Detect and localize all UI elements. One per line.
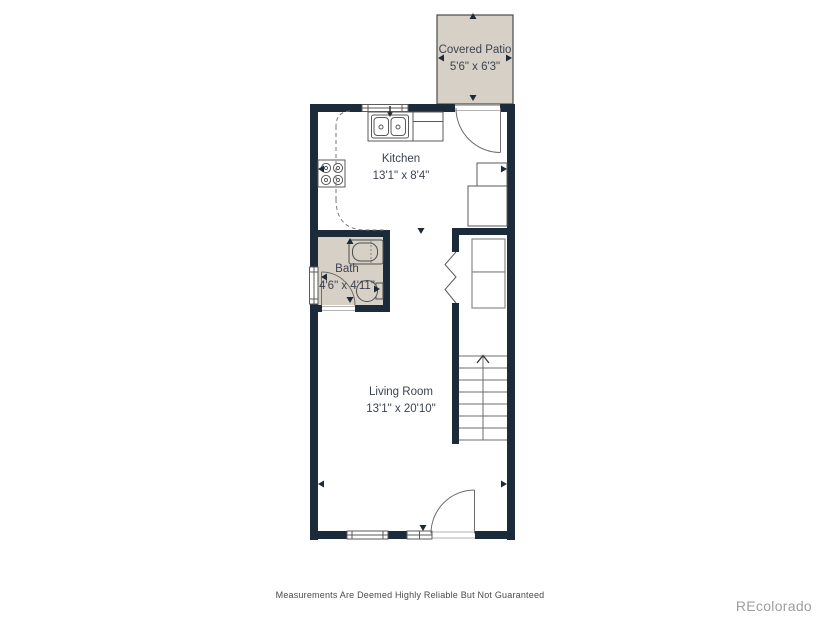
stair-wall-left <box>452 303 459 444</box>
refrigerator-icon <box>468 163 507 226</box>
floorplan-page: Covered Patio 5'6" x 6'3" Kitchen 13'1" … <box>0 0 825 619</box>
kitchen-name: Kitchen <box>373 151 430 168</box>
stairs-up <box>459 356 507 441</box>
bath-wall-bottom-left <box>318 305 322 312</box>
covered-patio-dimensions: 5'6" x 6'3" <box>439 59 512 76</box>
wall-top-2 <box>408 104 455 112</box>
wall-top-3 <box>500 104 515 112</box>
living-room-window-small <box>407 531 432 539</box>
stacked-washer-dryer-icon <box>472 239 505 308</box>
bath-wall-top <box>318 230 390 237</box>
kitchen-label: Kitchen 13'1" x 8'4" <box>373 151 430 185</box>
kitchen-window <box>362 105 408 112</box>
wall-top-1 <box>310 104 362 112</box>
bifold-doors-icon <box>445 252 456 303</box>
kitchen-dimensions: 13'1" x 8'4" <box>373 168 430 185</box>
living-room-name: Living Room <box>366 384 435 401</box>
floorplan-drawing <box>0 0 825 619</box>
wall-bottom-1 <box>310 531 347 539</box>
wall-left-upper <box>310 104 318 267</box>
bath-dimensions: 4'6" x 4'11" <box>319 278 375 295</box>
patio-entry-door <box>455 106 501 153</box>
living-room-window-large <box>347 531 388 539</box>
closet-wall-left-stub <box>452 228 459 252</box>
living-room-label: Living Room 13'1" x 20'10" <box>366 384 435 418</box>
bath-window <box>310 267 319 304</box>
dishwasher-counter <box>413 112 443 141</box>
closet-wall-top <box>452 228 507 235</box>
living-dim-arrow-down <box>420 525 427 531</box>
measurements-disclaimer: Measurements Are Deemed Highly Reliable … <box>276 590 545 600</box>
wall-bottom-3 <box>475 531 515 539</box>
wall-right <box>507 104 515 540</box>
front-entry-door <box>431 490 475 538</box>
wall-left-lower <box>310 304 318 540</box>
covered-patio-name: Covered Patio <box>439 42 512 59</box>
bath-name: Bath <box>319 261 375 278</box>
bath-label: Bath 4'6" x 4'11" <box>319 261 375 295</box>
living-dim-arrow-left <box>318 481 324 488</box>
living-dim-arrow-right <box>501 481 507 488</box>
bath-wall-right <box>383 230 390 312</box>
recolorado-watermark: REcolorado <box>736 598 812 614</box>
stove-icon <box>318 160 345 187</box>
covered-patio-label: Covered Patio 5'6" x 6'3" <box>439 42 512 76</box>
living-room-dimensions: 13'1" x 20'10" <box>366 401 435 418</box>
wall-bottom-2 <box>388 531 407 539</box>
bath-wall-bottom-right <box>355 305 390 312</box>
kitchen-dim-arrow-down <box>418 228 425 234</box>
